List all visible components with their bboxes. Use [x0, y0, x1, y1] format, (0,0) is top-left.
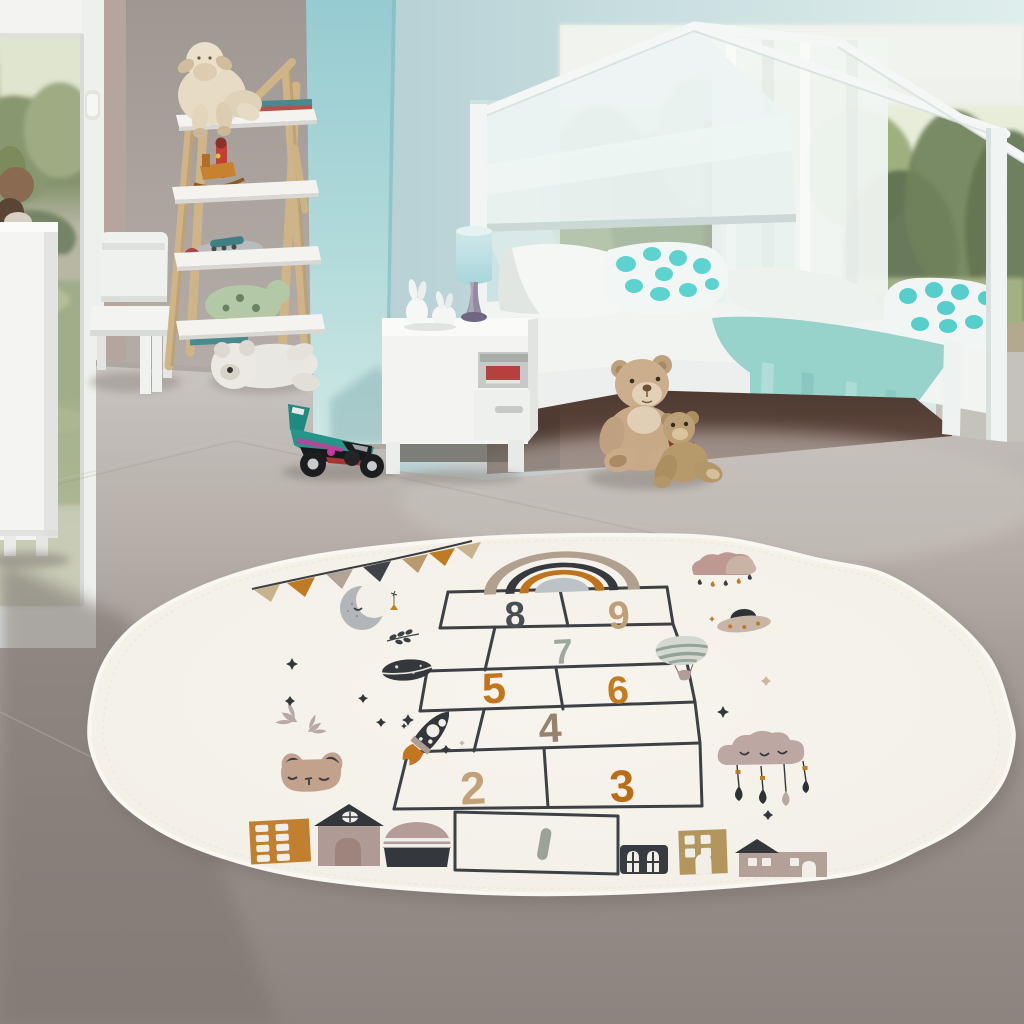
- svg-text:6: 6: [606, 669, 631, 713]
- svg-text:4: 4: [537, 704, 562, 751]
- svg-text:7: 7: [552, 632, 573, 672]
- svg-text:5: 5: [481, 664, 507, 713]
- svg-text:8: 8: [504, 594, 527, 636]
- svg-text:3: 3: [608, 760, 637, 813]
- svg-text:9: 9: [607, 594, 632, 638]
- svg-text:2: 2: [459, 761, 487, 814]
